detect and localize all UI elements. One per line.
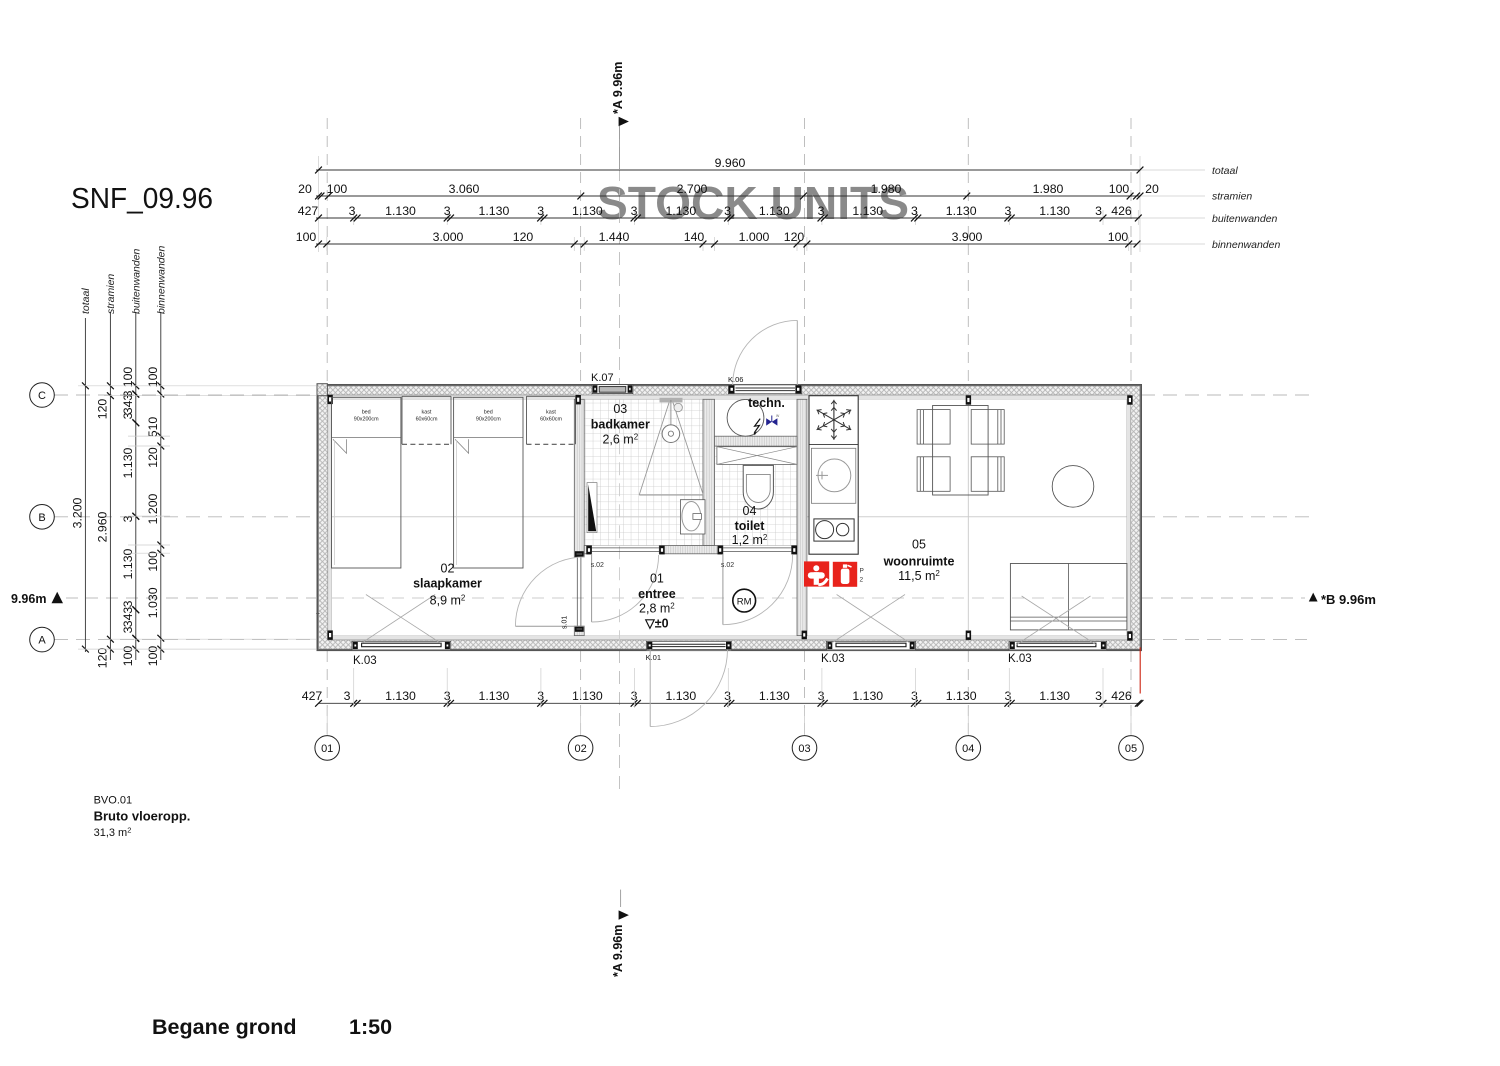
svg-text:1.030: 1.030	[146, 587, 160, 618]
svg-text:120: 120	[146, 447, 160, 468]
svg-text:31,3 m2: 31,3 m2	[94, 826, 132, 840]
svg-text:3: 3	[1004, 204, 1011, 218]
svg-text:140: 140	[684, 230, 705, 244]
svg-text:2,6 m2: 2,6 m2	[602, 432, 638, 446]
svg-text:2.700: 2.700	[677, 182, 708, 196]
svg-text:2.960: 2.960	[95, 511, 109, 542]
svg-text:K.03: K.03	[1008, 653, 1032, 665]
svg-text:K.01: K.01	[646, 653, 661, 662]
svg-text:buitenwanden: buitenwanden	[130, 248, 142, 314]
svg-text:100: 100	[1108, 230, 1129, 244]
svg-text:s.02: s.02	[721, 562, 734, 569]
svg-text:*B 9.96m: *B 9.96m	[1321, 592, 1376, 607]
svg-text:20: 20	[298, 182, 312, 196]
svg-text:C: C	[38, 390, 46, 402]
svg-text:60x60cm: 60x60cm	[416, 417, 438, 423]
svg-text:BVO.01: BVO.01	[94, 795, 133, 807]
svg-text:120: 120	[784, 230, 805, 244]
svg-text:3: 3	[121, 515, 135, 522]
svg-text:woonruimte: woonruimte	[883, 555, 955, 569]
svg-text:totaal: totaal	[80, 288, 92, 314]
svg-text:3.200: 3.200	[70, 497, 84, 528]
svg-text:STOCK UNITS: STOCK UNITS	[597, 177, 909, 229]
svg-text:3: 3	[911, 204, 918, 218]
svg-text:*A 9.96m: *A 9.96m	[611, 62, 625, 114]
svg-text:P: P	[860, 568, 864, 575]
svg-text:1.130: 1.130	[385, 689, 416, 703]
svg-text:A: A	[38, 635, 46, 647]
svg-text:100: 100	[146, 551, 160, 572]
svg-text:SNF_09.96: SNF_09.96	[71, 183, 213, 215]
svg-text:90x200cm: 90x200cm	[354, 417, 379, 423]
svg-text:9.960: 9.960	[715, 156, 746, 170]
svg-text:s.01: s.01	[562, 616, 569, 629]
svg-text:s.02: s.02	[591, 562, 604, 569]
svg-text:100: 100	[121, 646, 135, 667]
svg-text:3: 3	[121, 600, 135, 607]
svg-text:3: 3	[121, 626, 135, 633]
svg-text:3: 3	[818, 204, 825, 218]
svg-text:3: 3	[349, 204, 356, 218]
svg-text:100: 100	[1109, 182, 1130, 196]
svg-text:02: 02	[574, 743, 586, 755]
svg-text:11,5 m2: 11,5 m2	[898, 569, 940, 583]
svg-text:stramien: stramien	[105, 274, 117, 314]
svg-text:120: 120	[95, 399, 109, 420]
svg-text:techn.: techn.	[748, 396, 785, 410]
svg-text:1.130: 1.130	[759, 689, 790, 703]
svg-text:binnenwanden: binnenwanden	[1212, 239, 1280, 251]
svg-text:8,9 m2: 8,9 m2	[430, 594, 466, 608]
svg-text:3: 3	[1004, 689, 1011, 703]
svg-text:Begane grond: Begane grond	[152, 1015, 297, 1039]
svg-text:K.06: K.06	[728, 375, 743, 384]
svg-text:3: 3	[1095, 689, 1102, 703]
svg-text:K.03: K.03	[353, 655, 377, 667]
svg-text:120: 120	[95, 648, 109, 669]
svg-text:427: 427	[298, 204, 319, 218]
svg-text:120: 120	[513, 230, 534, 244]
svg-text:427: 427	[302, 689, 323, 703]
svg-text:3: 3	[724, 689, 731, 703]
svg-text:1.130: 1.130	[852, 204, 883, 218]
svg-text:343: 343	[121, 607, 135, 628]
svg-text:01: 01	[321, 743, 333, 755]
svg-text:05: 05	[1125, 743, 1137, 755]
svg-text:1.000: 1.000	[739, 230, 770, 244]
svg-text:stramien: stramien	[1212, 191, 1252, 203]
svg-text:▽±0: ▽±0	[644, 617, 668, 631]
svg-text:3: 3	[121, 412, 135, 419]
svg-text:04: 04	[743, 504, 757, 518]
svg-text:Bruto vloeropp.: Bruto vloeropp.	[94, 808, 191, 823]
svg-text:entree: entree	[638, 587, 676, 601]
svg-text:3.000: 3.000	[433, 230, 464, 244]
svg-text:510: 510	[146, 417, 160, 438]
svg-text:1.130: 1.130	[572, 689, 603, 703]
svg-text:03: 03	[798, 743, 810, 755]
svg-text:bed: bed	[362, 410, 371, 416]
svg-text:1.440: 1.440	[599, 230, 630, 244]
svg-text:1.130: 1.130	[1039, 204, 1070, 218]
svg-text:1.130: 1.130	[1039, 689, 1070, 703]
svg-text:1.980: 1.980	[1033, 182, 1064, 196]
svg-text:3: 3	[1095, 204, 1102, 218]
svg-text:1.980: 1.980	[871, 182, 902, 196]
svg-text:K.07: K.07	[591, 372, 614, 384]
svg-text:1.130: 1.130	[572, 204, 603, 218]
svg-text:426: 426	[1111, 689, 1132, 703]
svg-text:1.130: 1.130	[852, 689, 883, 703]
svg-text:04: 04	[962, 743, 974, 755]
svg-text:3: 3	[818, 689, 825, 703]
svg-text:buitenwanden: buitenwanden	[1212, 213, 1278, 225]
svg-text:20: 20	[1145, 182, 1159, 196]
svg-text:badkamer: badkamer	[591, 418, 650, 432]
svg-text:90x200cm: 90x200cm	[476, 417, 501, 423]
svg-text:toilet: toilet	[735, 519, 766, 533]
svg-text:1,2 m2: 1,2 m2	[732, 533, 768, 547]
svg-text:100: 100	[296, 230, 317, 244]
svg-text:B: B	[38, 512, 45, 524]
svg-text:2,8 m2: 2,8 m2	[639, 601, 675, 615]
svg-text:3.060: 3.060	[449, 182, 480, 196]
svg-text:bed: bed	[484, 410, 493, 416]
svg-text:RM: RM	[737, 596, 752, 607]
svg-text:01: 01	[650, 571, 664, 585]
svg-text:1.130: 1.130	[479, 689, 510, 703]
svg-text:slaapkamer: slaapkamer	[413, 577, 482, 591]
svg-text:1:50: 1:50	[349, 1015, 392, 1039]
svg-text:1.130: 1.130	[946, 689, 977, 703]
svg-text:kast: kast	[546, 410, 556, 416]
svg-text:1.130: 1.130	[479, 204, 510, 218]
svg-text:1.130: 1.130	[759, 204, 790, 218]
svg-text:3: 3	[631, 689, 638, 703]
svg-text:1.200: 1.200	[146, 493, 160, 524]
svg-text:3: 3	[537, 204, 544, 218]
svg-text:3: 3	[444, 204, 451, 218]
svg-text:100: 100	[327, 182, 348, 196]
svg-text:3: 3	[911, 689, 918, 703]
svg-text:3: 3	[344, 689, 351, 703]
svg-text:K.03: K.03	[821, 653, 845, 665]
svg-text:1.130: 1.130	[946, 204, 977, 218]
svg-text:100: 100	[146, 646, 160, 667]
svg-text:9.96m: 9.96m	[11, 592, 46, 606]
svg-text:3: 3	[724, 204, 731, 218]
svg-text:2: 2	[860, 577, 864, 584]
svg-text:1.130: 1.130	[121, 447, 135, 478]
svg-text:3: 3	[631, 204, 638, 218]
svg-text:3.900: 3.900	[952, 230, 983, 244]
svg-text:426: 426	[1111, 204, 1132, 218]
svg-text:1.130: 1.130	[665, 204, 696, 218]
svg-text:05: 05	[912, 538, 926, 552]
svg-text:totaal: totaal	[1212, 165, 1238, 177]
svg-text:1.130: 1.130	[665, 689, 696, 703]
svg-text:kast: kast	[422, 410, 432, 416]
svg-text:binnenwanden: binnenwanden	[155, 246, 167, 314]
svg-text:03: 03	[613, 402, 627, 416]
svg-text:60x60cm: 60x60cm	[540, 417, 562, 423]
svg-text:*A 9.96m: *A 9.96m	[611, 925, 625, 977]
svg-text:100: 100	[146, 367, 160, 388]
svg-text:100: 100	[121, 367, 135, 388]
svg-text:02: 02	[441, 562, 455, 576]
svg-text:343: 343	[121, 394, 135, 415]
svg-text:1.130: 1.130	[385, 204, 416, 218]
